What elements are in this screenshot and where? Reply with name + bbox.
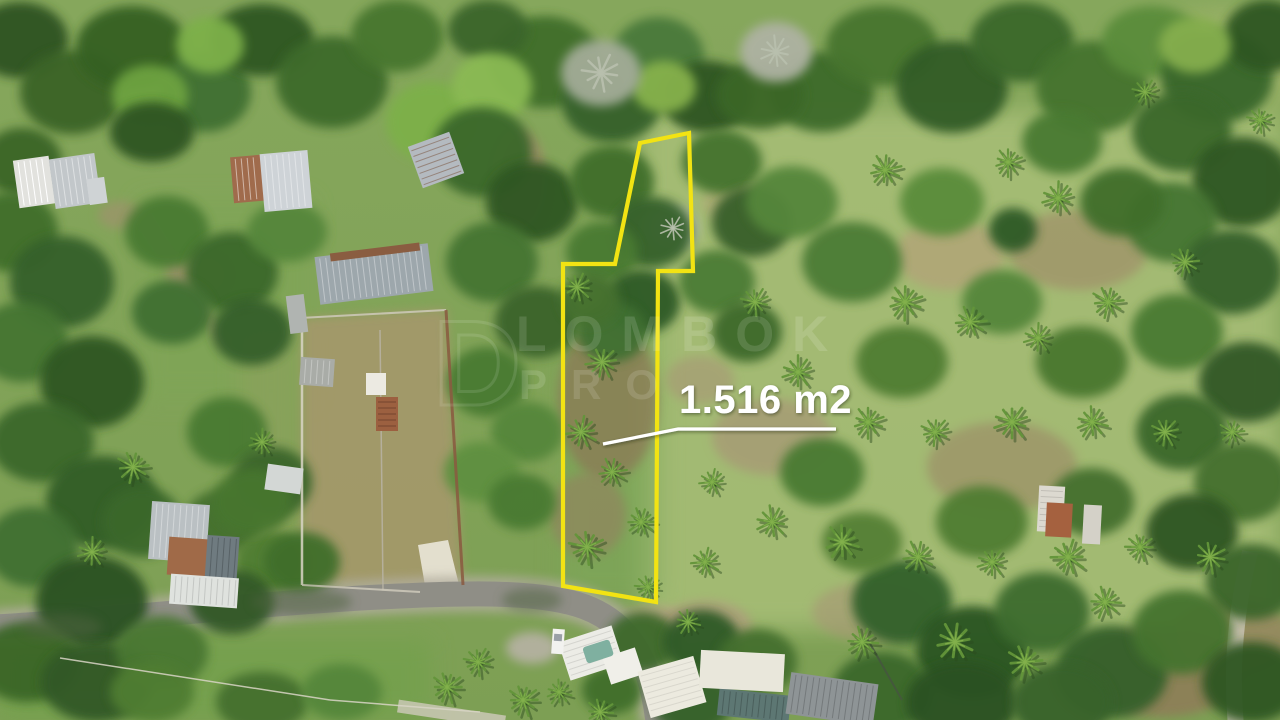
palm-frond [1092, 422, 1093, 429]
palm-frond [712, 481, 718, 482]
building-roof [86, 177, 107, 205]
building-roof-rect [86, 177, 107, 205]
building-roof [169, 574, 239, 609]
tree-canopy [351, 0, 443, 72]
road-tree-shadow [22, 614, 102, 640]
palm-frond [126, 467, 133, 468]
palm-frond [1179, 262, 1185, 263]
tree-canopy [176, 17, 244, 73]
tree-canopy [1080, 168, 1164, 236]
tree-canopy [746, 166, 838, 238]
palm-frond [855, 641, 862, 642]
building-roof [1082, 505, 1102, 545]
palm-frond [1091, 413, 1092, 422]
building-roof [204, 535, 239, 583]
building-roof-rect [13, 156, 55, 209]
tree-canopy [247, 202, 327, 262]
palm-frond [697, 562, 705, 563]
palm-frond [1101, 302, 1108, 303]
palm-frond [705, 561, 711, 562]
aerial-photo-svg: 1.516 m2 D LOMBOK PRO [0, 0, 1280, 720]
palm-frond [477, 656, 478, 662]
palm-frond [1185, 261, 1193, 262]
area-label-text: 1.516 m2 [679, 378, 852, 422]
palm-frond [673, 228, 674, 240]
building-roof [366, 373, 386, 395]
building-roof-rect [551, 629, 565, 655]
building-roof [554, 634, 562, 642]
dirt-patch [506, 632, 558, 664]
tree-canopy [1159, 17, 1231, 73]
palm-frond [1145, 92, 1146, 99]
tree-canopy [682, 130, 762, 194]
tree-canopy [632, 61, 696, 113]
tree-canopy [1036, 326, 1128, 398]
palm-frond [962, 322, 970, 323]
building-roof-rect [264, 464, 303, 495]
building-roof-rect [554, 634, 562, 642]
building-roof-rect [1045, 502, 1073, 537]
tree-canopy [488, 474, 556, 530]
tree-canopy [802, 222, 902, 302]
tree-canopy [302, 664, 382, 720]
building-roof [13, 156, 55, 209]
watermark-monogram: D [433, 295, 521, 431]
drone-photo: 1.516 m2 D LOMBOK PRO [0, 0, 1280, 720]
tree-canopy [900, 168, 984, 236]
palm-frond [1025, 661, 1034, 662]
palm-frond [586, 539, 587, 547]
building-roof-rect [167, 537, 210, 578]
tree-canopy [212, 299, 292, 365]
building-roof [167, 537, 210, 578]
building-roof-rect [366, 373, 386, 395]
tree-canopy [936, 486, 1028, 558]
building-roof [551, 629, 565, 655]
tree-canopy [1022, 110, 1102, 174]
watermark-row1: LOMBOK [516, 306, 846, 362]
tree-canopy [110, 102, 194, 162]
tree-canopy [132, 280, 212, 344]
tree-canopy [989, 208, 1037, 252]
building-roof [376, 397, 398, 431]
road-tree-shadow [502, 588, 562, 612]
palm-frond [1017, 662, 1025, 663]
palm-frond [754, 296, 755, 302]
tree-canopy [780, 438, 864, 506]
building-roof [699, 650, 785, 692]
building-roof [299, 357, 335, 387]
road-tree-shadow [252, 589, 352, 615]
building-roof [1045, 502, 1073, 537]
palm-frond [1259, 114, 1260, 120]
building-roof-rect [699, 650, 785, 692]
building-roof [260, 150, 313, 212]
tree-canopy [856, 326, 948, 398]
building-roof-rect [1082, 505, 1102, 545]
tree-canopy [448, 0, 528, 60]
palm-frond [1144, 86, 1145, 92]
watermark-row2: PRO [519, 361, 682, 408]
palm-frond [970, 321, 979, 322]
building-roof [264, 464, 303, 495]
building-roof [230, 155, 264, 203]
tree-canopy [110, 662, 194, 720]
